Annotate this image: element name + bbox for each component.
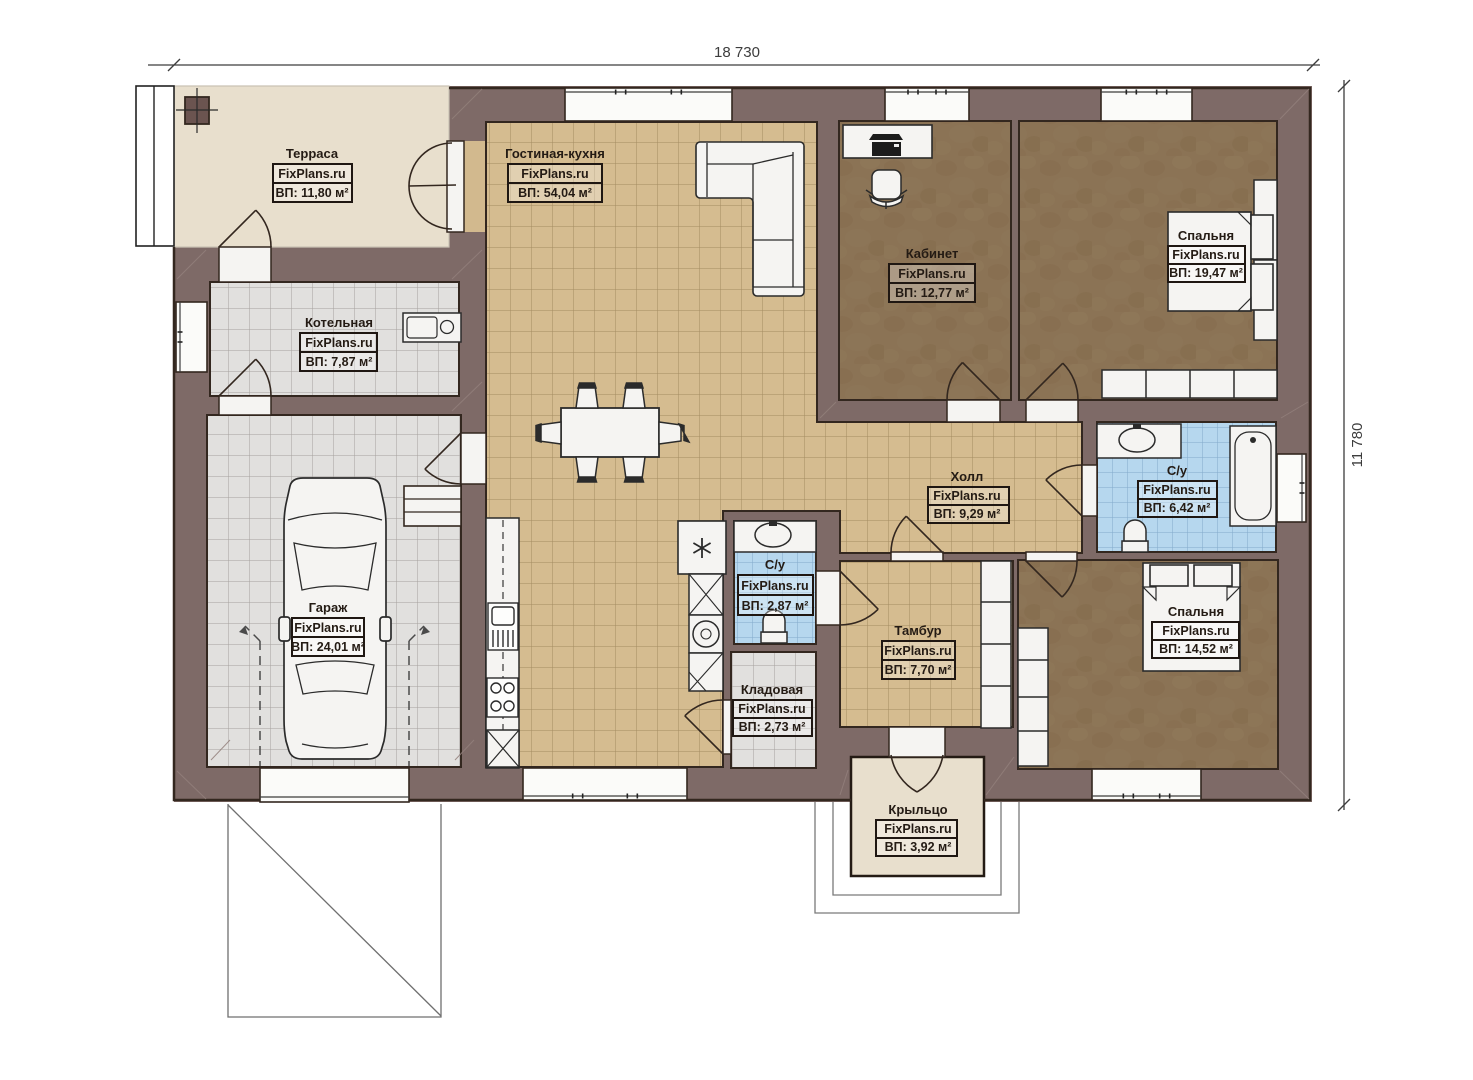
svg-text:FixPlans.ru: FixPlans.ru: [738, 702, 805, 716]
svg-text:FixPlans.ru: FixPlans.ru: [1162, 624, 1229, 638]
svg-text:Кладовая: Кладовая: [741, 682, 803, 697]
svg-text:ВП: 6,42 м²: ВП: 6,42 м²: [1144, 501, 1211, 515]
svg-text:ВП: 3,92 м²: ВП: 3,92 м²: [885, 840, 952, 854]
svg-text:С/у: С/у: [765, 557, 786, 572]
svg-text:FixPlans.ru: FixPlans.ru: [884, 644, 951, 658]
svg-text:Тамбур: Тамбур: [894, 623, 941, 638]
svg-text:18 730: 18 730: [714, 44, 760, 61]
svg-text:FixPlans.ru: FixPlans.ru: [1172, 248, 1239, 262]
svg-text:С/у: С/у: [1167, 463, 1188, 478]
svg-text:FixPlans.ru: FixPlans.ru: [741, 579, 808, 593]
svg-text:ВП: 7,87 м²: ВП: 7,87 м²: [306, 355, 373, 369]
svg-text:FixPlans.ru: FixPlans.ru: [898, 267, 965, 281]
svg-text:Гостиная-кухня: Гостиная-кухня: [505, 146, 605, 161]
svg-text:ВП: 7,70 м²: ВП: 7,70 м²: [885, 663, 952, 677]
svg-text:FixPlans.ru: FixPlans.ru: [305, 336, 372, 350]
svg-text:ВП: 54,04 м²: ВП: 54,04 м²: [518, 186, 592, 200]
svg-text:Спальня: Спальня: [1168, 604, 1224, 619]
svg-text:FixPlans.ru: FixPlans.ru: [278, 167, 345, 181]
svg-text:ВП: 2,87 м²: ВП: 2,87 м²: [742, 599, 809, 613]
svg-text:FixPlans.ru: FixPlans.ru: [884, 822, 951, 836]
svg-text:ВП: 12,77 м²: ВП: 12,77 м²: [895, 286, 969, 300]
svg-text:Терраса: Терраса: [286, 146, 339, 161]
svg-text:Спальня: Спальня: [1178, 228, 1234, 243]
svg-text:Крыльцо: Крыльцо: [888, 802, 947, 817]
svg-text:Кабинет: Кабинет: [906, 246, 959, 261]
svg-text:FixPlans.ru: FixPlans.ru: [933, 489, 1000, 503]
svg-text:Холл: Холл: [951, 469, 984, 484]
svg-text:ВП: 19,47 м²: ВП: 19,47 м²: [1169, 266, 1243, 280]
svg-text:ВП: 11,80 м²: ВП: 11,80 м²: [275, 186, 348, 200]
svg-text:ВП: 14,52 м²: ВП: 14,52 м²: [1159, 642, 1233, 656]
svg-text:FixPlans.ru: FixPlans.ru: [294, 621, 361, 635]
svg-text:ВП: 2,73 м²: ВП: 2,73 м²: [739, 720, 806, 734]
svg-text:ВП: 9,29 м²: ВП: 9,29 м²: [934, 507, 1001, 521]
svg-text:Гараж: Гараж: [309, 600, 349, 615]
svg-text:Котельная: Котельная: [305, 315, 373, 330]
svg-text:FixPlans.ru: FixPlans.ru: [521, 167, 588, 181]
svg-text:FixPlans.ru: FixPlans.ru: [1143, 483, 1210, 497]
svg-text:ВП: 24,01 м²: ВП: 24,01 м²: [291, 640, 365, 654]
svg-text:11 780: 11 780: [1349, 423, 1366, 468]
